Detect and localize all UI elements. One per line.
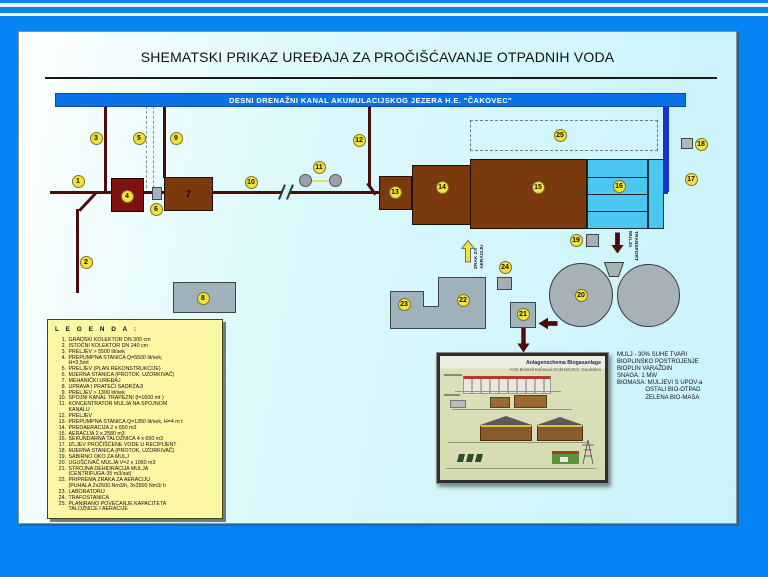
poster-digester-body: [480, 425, 532, 441]
pipe-east-collector: [76, 209, 79, 293]
marker-number: 25: [556, 132, 564, 139]
poster-caption-mark: [444, 394, 460, 396]
marker-number: 15: [534, 184, 542, 191]
pipe-overflow-12: [368, 106, 371, 186]
canal-banner-label: DESNI DRENAŽNI KANAL AKUMULACIJSKOG JEZE…: [229, 96, 512, 105]
info-block: MULJ - 30% SUHE TVARI BIOPLINSKO POSTROJ…: [617, 352, 702, 402]
pipe-overflow-9: [163, 106, 166, 178]
legend-item-text: PLANIRANO POVEĆANJE KAPACITETA TALOŽNICE…: [69, 502, 167, 514]
number-marker: 25: [554, 129, 567, 142]
marker-number: 11: [315, 164, 322, 171]
number-marker: 1: [72, 175, 85, 188]
sludge-left-arrow-icon: [538, 317, 558, 330]
marker-number: 1: [76, 178, 80, 185]
preaeration-box: [412, 165, 471, 225]
poster-small-tank: [514, 395, 547, 408]
pipe-overflow-3: [104, 106, 107, 193]
poster-title: Anlagenschema Biogasanlage: [526, 360, 601, 366]
marker-number: 2: [84, 259, 88, 266]
number-marker: 5: [133, 132, 146, 145]
sludge-down-arrow-icon: [517, 328, 530, 353]
legend-box: L E G E N D A : 1. GRADSKI KOLEKTOR DN 3…: [47, 319, 223, 519]
measuring-station-box: [152, 187, 162, 200]
poster-subtitle: KSK Biokraft Kußmaul GmbH&CoKG, Gaufelde…: [510, 367, 601, 372]
number-marker: 4: [121, 190, 134, 203]
poster-power-building: [552, 451, 579, 464]
marker-number: 16: [615, 183, 623, 190]
poster-ground-line: [448, 442, 588, 443]
number-marker: 9: [170, 132, 183, 145]
clarifier-divider: [588, 194, 647, 195]
number-marker: 13: [389, 186, 402, 199]
poster-pylon: [582, 439, 594, 465]
poster-small-tank: [490, 397, 510, 408]
mechanical-device-label: 7: [164, 177, 213, 211]
marker-number: 8: [201, 295, 205, 302]
legend-item: 25. PLANIRANO POVEĆANJE KAPACITETA TALOŽ…: [55, 502, 219, 514]
poster: Anlagenschema Biogasanlage KSK Biokraft …: [440, 356, 605, 480]
legend-list: 1. GRADSKI KOLEKTOR DN 300 cm 2. ISTOČNI…: [55, 338, 219, 513]
poster-base-line: [446, 468, 596, 469]
number-marker: 11: [313, 161, 326, 174]
marker-number: 19: [572, 237, 580, 244]
number-marker: 15: [532, 181, 545, 194]
poster-ground-line: [455, 391, 561, 392]
marker-number: 20: [577, 292, 585, 299]
frame-stripe-top: [0, 3, 768, 7]
sludge-transport-label: TRANSPORT MULJA: [627, 231, 638, 261]
thickener-funnel: [604, 262, 624, 277]
clarifier-outlet-channel: [648, 159, 664, 229]
marker-number: 9: [174, 135, 178, 142]
pipe-planned-overflow-5-dashed: [146, 106, 154, 188]
air-up-arrow-icon: [461, 240, 475, 263]
number-marker: 8: [197, 292, 210, 305]
sludge-concentrator-dot: [299, 174, 312, 187]
legend-item-number: 25.: [55, 502, 69, 514]
sludge-thickener-tank: [617, 264, 680, 327]
number-marker: 23: [398, 298, 411, 311]
marker-number: 23: [400, 301, 408, 308]
legend-title: L E G E N D A :: [55, 326, 219, 333]
marker-number: 18: [697, 141, 705, 148]
number-marker: 20: [575, 289, 588, 302]
number-marker: 6: [150, 203, 163, 216]
poster-solar-panels: [457, 454, 485, 462]
transformer-box: [497, 277, 512, 290]
marker-number: 21: [519, 311, 527, 318]
poster-caption-mark: [444, 374, 462, 376]
poster-machine: [450, 400, 466, 408]
air-arrow-label: ZRAK ZA AERACIJU: [474, 244, 485, 269]
marker-number: 17: [687, 176, 695, 183]
number-marker: 14: [436, 181, 449, 194]
number-marker: 24: [499, 261, 512, 274]
canal-banner: DESNI DRENAŽNI KANAL AKUMULACIJSKOG JEZE…: [55, 93, 686, 107]
marker-number: 14: [438, 184, 446, 191]
poster-power-building-sign: [560, 457, 568, 462]
frame-stripe-bottom: [0, 13, 768, 17]
title-underline: [45, 77, 717, 79]
number-marker: 2: [80, 256, 93, 269]
number-marker: 16: [613, 180, 626, 193]
page-frame: { "title": "SHEMATSKI PRIKAZ UREĐAJA ZA …: [0, 0, 768, 577]
sludge-concentrator-dot: [329, 174, 342, 187]
biogas-poster-photo: Anlagenschema Biogasanlage KSK Biokraft …: [436, 352, 609, 484]
marker-number: 4: [125, 193, 129, 200]
marker-number: 6: [154, 206, 158, 213]
marker-number: 13: [391, 189, 399, 196]
marker-number: 22: [459, 297, 467, 304]
sludge-collection-box: [586, 234, 599, 247]
number-marker: 18: [695, 138, 708, 151]
clarifier-divider: [588, 177, 647, 178]
marker-number: 12: [355, 137, 363, 144]
outfall-pipe-vertical: [663, 106, 669, 192]
secondary-clarifier-box: [587, 159, 648, 229]
page-title: SHEMATSKI PRIKAZ UREĐAJA ZA PROČIŠĆAVANJ…: [18, 49, 737, 65]
poster-ground-line: [452, 409, 572, 410]
aeration-box: [470, 159, 587, 229]
number-marker: 21: [517, 308, 530, 321]
sludge-transport-arrow-icon: [611, 232, 624, 254]
marker-number: 10: [247, 179, 255, 186]
number-marker: 12: [353, 134, 366, 147]
poster-digester-body: [537, 425, 583, 441]
marker-number: 3: [94, 135, 98, 142]
number-marker: 22: [457, 294, 470, 307]
number-marker: 10: [245, 176, 258, 189]
pipe-main-collector: [50, 191, 383, 194]
marker-number: 5: [137, 135, 141, 142]
number-marker: 19: [570, 234, 583, 247]
number-marker: 3: [90, 132, 103, 145]
poster-digester-roof: [480, 416, 532, 425]
clarifier-divider: [588, 211, 647, 212]
poster-digester-roof: [537, 417, 583, 425]
measuring-station-2-box: [681, 138, 693, 149]
number-marker: 17: [685, 173, 698, 186]
marker-number: 24: [501, 264, 509, 271]
